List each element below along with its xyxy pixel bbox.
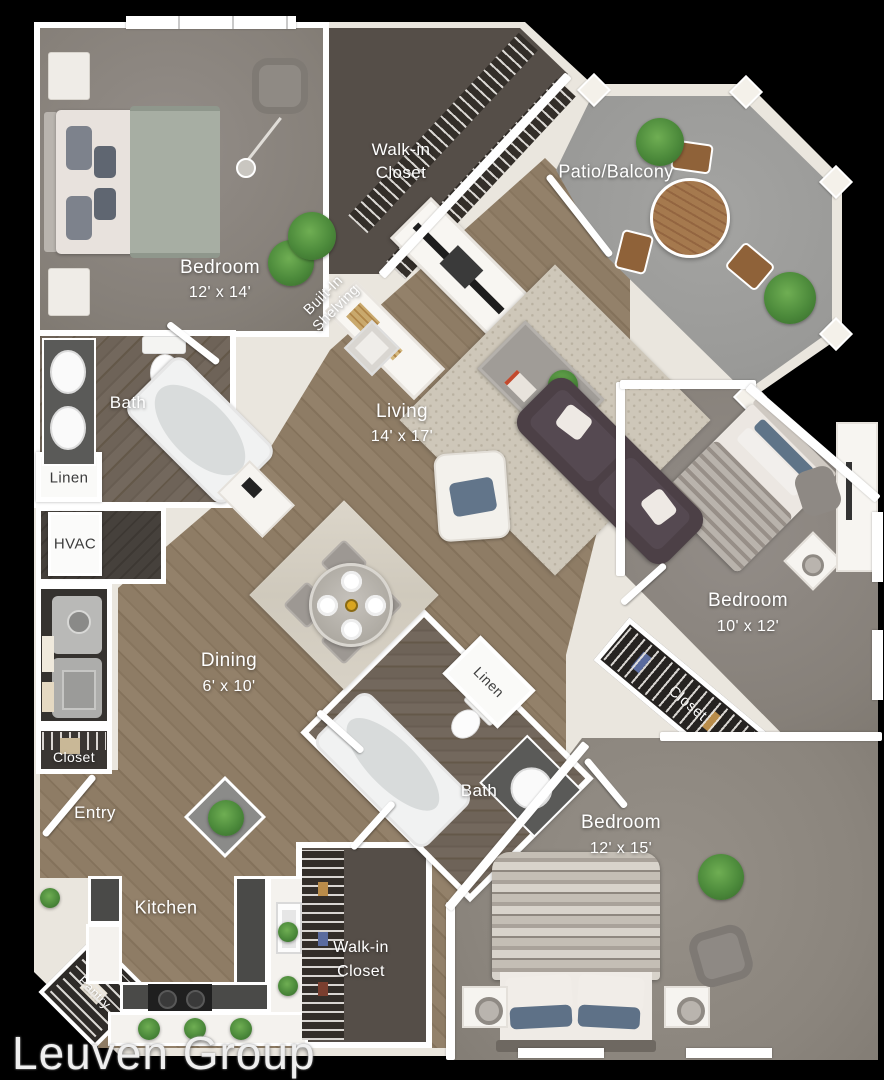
label-bedroom-br: Bedroom [581,812,661,834]
stove [148,984,212,1011]
label-bath-lower: Bath [461,781,498,801]
window [518,1048,604,1058]
armchair [433,450,511,543]
nightstand [48,268,90,316]
table-lamp [475,997,503,1025]
label-walkin-top-2: Closet [376,163,427,183]
plate [341,619,362,640]
window [872,630,883,700]
kitchen-plant [278,976,298,996]
label-living-dims: 14' x 17' [371,428,433,446]
sink [50,406,86,450]
hanger-item [318,932,328,946]
label-walkin-bottom-1: Walk-in [333,939,389,957]
towel [42,636,54,672]
patio-table [650,178,730,258]
window [126,16,296,29]
dryer-door [62,670,96,710]
burner [186,990,205,1009]
label-patio: Patio/Balcony [558,162,673,183]
floor-lamp-shade [236,158,256,178]
label-closet-entry: Closet [53,749,95,765]
living-plant [288,212,336,260]
bed-pillow [66,196,92,240]
bed-pillow [509,1004,572,1029]
plate [365,595,386,616]
label-dining-dims: 6' x 10' [203,678,256,696]
magazine [504,370,537,403]
label-walkin-top-1: Walk-in [372,140,431,160]
nightstand [462,986,508,1028]
plate [317,595,338,616]
table-lamp [797,550,828,581]
label-entry: Entry [74,803,116,823]
centerpiece [345,599,358,612]
label-walkin-bottom-2: Closet [337,963,385,981]
armchair-pillow [448,476,497,517]
patio-plant [636,118,684,166]
label-bedroom-right: Bedroom [708,590,788,612]
label-hvac: HVAC [54,536,96,553]
kitchen-plant [278,922,298,942]
kitchen-plant [40,888,60,908]
table-lamp [677,997,705,1025]
label-bedroom-right-dims: 10' x 12' [717,618,779,636]
bed-pillow [66,126,92,170]
patio-plant [764,272,816,324]
bed-blanket [492,852,660,980]
washer-knob [67,610,91,634]
bedroom-plant [698,854,744,900]
toilet-tank [142,336,186,354]
wall [620,380,756,389]
dryer [52,658,102,718]
sink [50,350,86,394]
bed-blanket [130,106,220,258]
label-kitchen: Kitchen [135,898,198,919]
watermark: Leuven Group [12,1026,316,1080]
island-plant [208,800,244,836]
label-bedroom-br-dims: 12' x 15' [590,840,652,858]
floor-plan: Pantry Closet [0,0,884,1080]
label-living: Living [376,401,428,423]
wall [616,382,625,576]
kitchen-cabinet [88,876,122,924]
label-bedroom-tl-dims: 12' x 14' [189,284,251,302]
label-linen-upper: Linen [50,470,89,487]
wall [660,732,882,741]
washer [52,596,102,654]
bed-pillow [577,1004,640,1029]
label-bath-upper: Bath [110,393,147,413]
bed-pillow [94,188,116,220]
label-bedroom-tl: Bedroom [180,257,260,279]
nightstand [48,52,90,100]
plate [341,571,362,592]
kitchen-counter [86,924,122,984]
hanger-item [318,982,328,996]
label-dining: Dining [201,650,257,672]
burner [158,990,177,1009]
decor-item [241,477,262,498]
window [686,1048,772,1058]
towel [42,682,54,712]
bed-pillow [94,146,116,178]
nightstand [664,986,710,1028]
armchair [252,58,308,114]
wall [446,902,455,1060]
window [872,512,883,582]
hanger-item [318,882,328,896]
